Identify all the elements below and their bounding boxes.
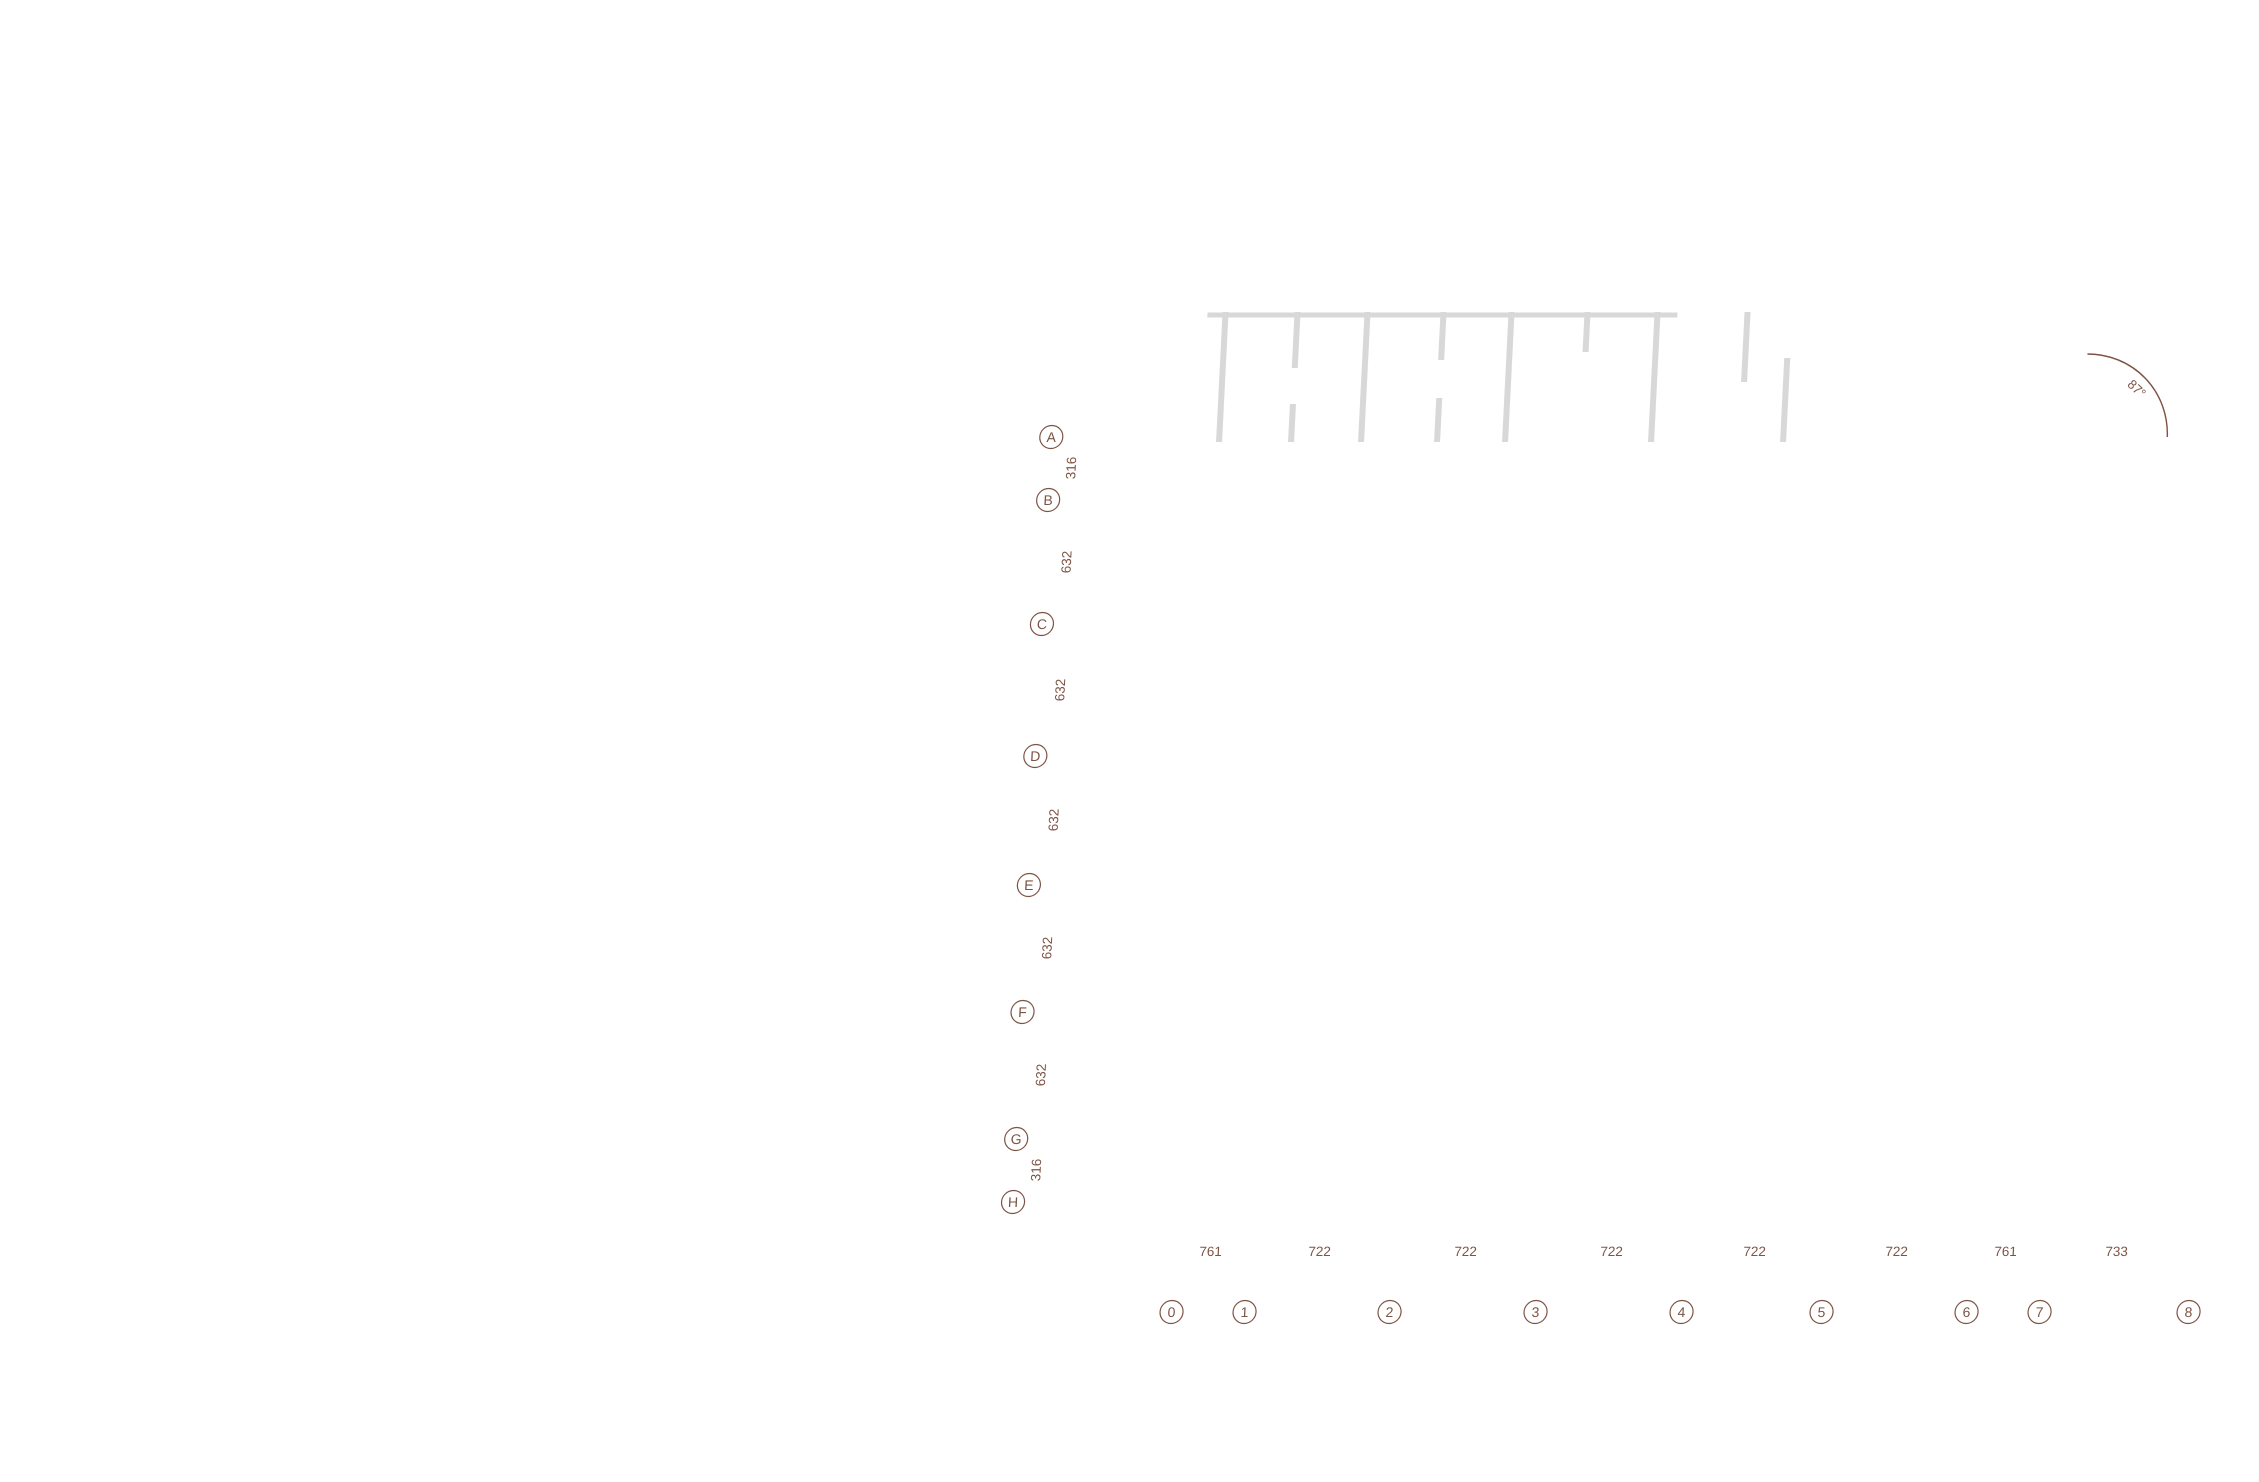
col-label-text: 7 — [2035, 1304, 2044, 1320]
row-dim: 632 — [1046, 809, 1062, 832]
angle-arc — [2083, 354, 2171, 437]
grid-row-label-F: F — [1010, 1001, 1034, 1024]
grid-labels: A B C D E F G H 316 632 632 632 632 632 … — [995, 354, 2247, 1324]
row-label-text: D — [1030, 748, 1041, 764]
col-label-text: 4 — [1677, 1304, 1686, 1320]
context-buildings — [1201, 312, 1790, 442]
row-dim: 632 — [1039, 937, 1055, 960]
floor-plan-canvas: A B C D E F G H 316 632 632 632 632 632 … — [0, 0, 2259, 1482]
row-label-text: H — [1008, 1194, 1019, 1210]
grid-row-label-H: H — [1001, 1191, 1025, 1214]
grid-col-label-0: 0 — [1159, 1301, 1183, 1324]
row-label-text: G — [1010, 1131, 1022, 1147]
grid-col-label-3: 3 — [1523, 1301, 1547, 1324]
col-dim: 722 — [1600, 1244, 1623, 1259]
grid-col-label-7: 7 — [2027, 1301, 2051, 1324]
grid-row-label-D: D — [1023, 745, 1047, 768]
col-dim: 722 — [1743, 1244, 1766, 1259]
plan-skew-group: A B C D E F G H 316 632 632 632 632 632 … — [995, 312, 2250, 1324]
row-dim: 632 — [1052, 679, 1068, 702]
col-label-text: 1 — [1240, 1304, 1249, 1320]
col-dim: 722 — [1454, 1244, 1477, 1259]
col-dim: 722 — [1885, 1244, 1908, 1259]
grid-row-label-G: G — [1004, 1128, 1028, 1151]
row-dim: 632 — [1033, 1064, 1049, 1087]
grid-col-label-4: 4 — [1669, 1301, 1693, 1324]
row-label-text: C — [1036, 616, 1047, 632]
col-label-text: 8 — [2184, 1304, 2193, 1320]
grid-col-label-8: 8 — [2176, 1301, 2200, 1324]
col-label-text: 0 — [1167, 1304, 1176, 1320]
grid-row-label-E: E — [1017, 874, 1041, 897]
grid-row-label-A: A — [1039, 426, 1063, 449]
grid-col-label-2: 2 — [1377, 1301, 1401, 1324]
col-dim: 761 — [1994, 1244, 2017, 1259]
row-dim: 316 — [1063, 457, 1079, 480]
col-label-text: 2 — [1385, 1304, 1394, 1320]
angle-label: 87° — [2124, 377, 2149, 401]
row-label-text: F — [1018, 1004, 1027, 1020]
grid-col-label-1: 1 — [1232, 1301, 1256, 1324]
row-label-text: B — [1043, 492, 1053, 508]
col-dim: 722 — [1308, 1244, 1331, 1259]
col-label-text: 5 — [1817, 1304, 1826, 1320]
col-dim: 761 — [1199, 1244, 1222, 1259]
grid-col-label-5: 5 — [1809, 1301, 1833, 1324]
col-label-text: 6 — [1962, 1304, 1971, 1320]
row-dim: 316 — [1028, 1159, 1044, 1182]
floor-plan-drawing: A B C D E F G H 316 632 632 632 632 632 … — [0, 0, 2259, 1482]
grid-col-label-6: 6 — [1954, 1301, 1978, 1324]
row-label-text: E — [1024, 877, 1034, 893]
grid-row-label-B: B — [1036, 489, 1060, 512]
grid-row-label-C: C — [1030, 613, 1054, 636]
col-label-text: 3 — [1531, 1304, 1540, 1320]
col-dim: 733 — [2105, 1244, 2128, 1259]
row-label-text: A — [1046, 429, 1057, 445]
row-dim: 632 — [1058, 551, 1074, 574]
